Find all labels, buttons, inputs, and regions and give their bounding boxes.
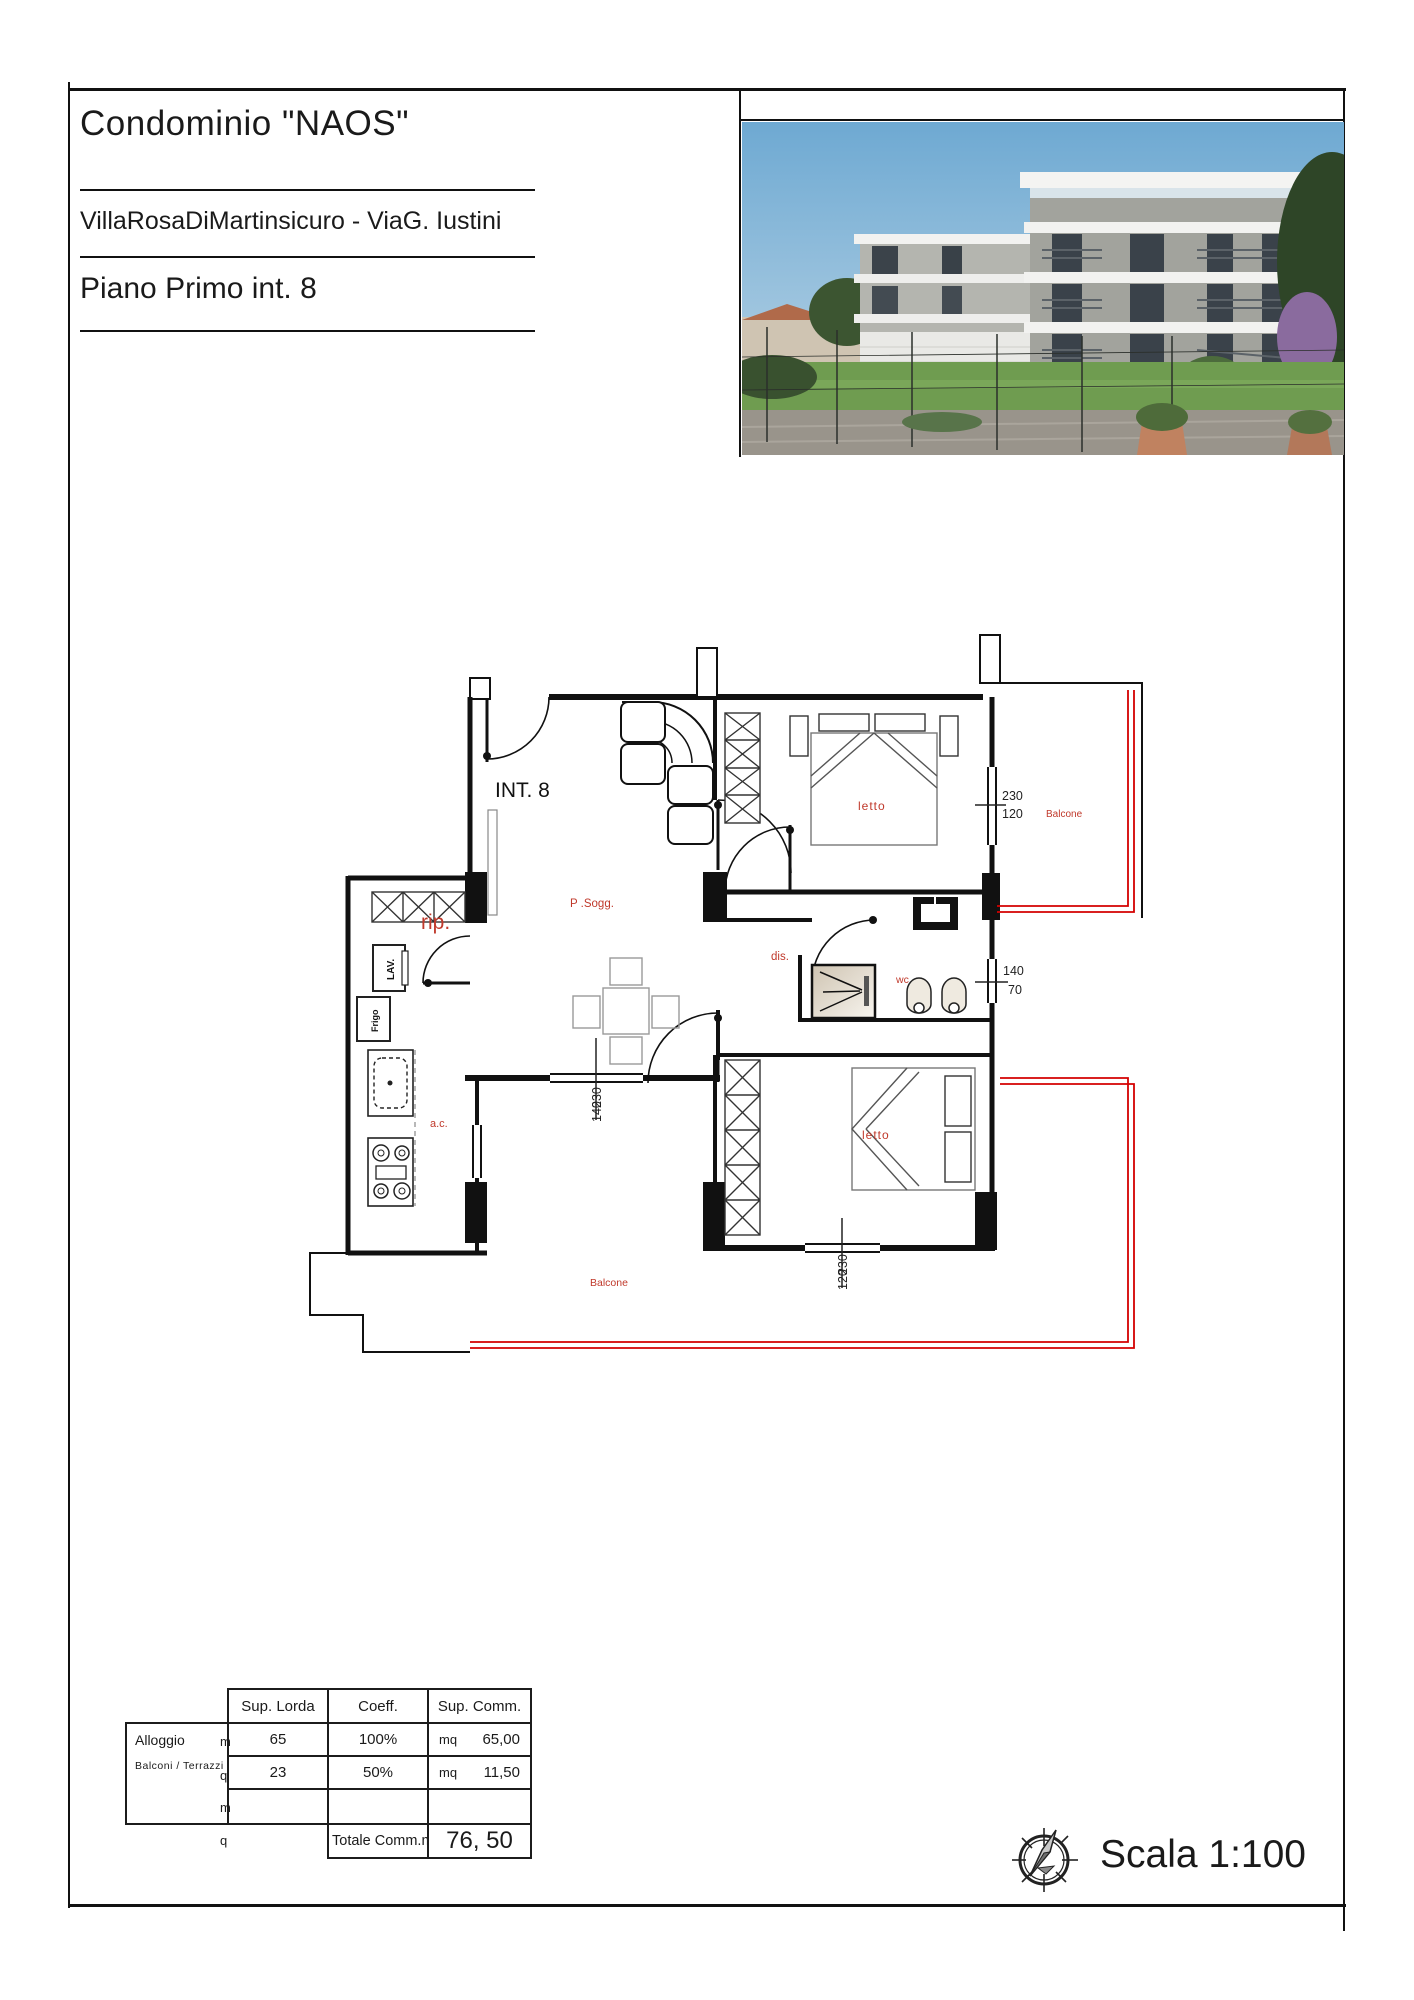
scale-label: Scala 1:100 [1100,1833,1306,1877]
unit-letter-q1: q [220,1768,227,1783]
cell-comm-balconi: mq 11,50 [427,1755,532,1790]
page-border-bottom [68,1904,1346,1907]
compass-rose-icon [1010,1822,1082,1894]
dim-win-mid-right-b: 70 [1008,983,1022,997]
comm-unit-alloggio: mq [439,1732,457,1747]
address-underline [80,256,535,258]
cell-lorda-alloggio: 65 [227,1722,329,1757]
dim-win-top-right-a: 230 [1002,789,1023,803]
room-label-hall: dis. [771,951,789,963]
page-floor: Piano Primo int. 8 [80,272,317,306]
table-header-coeff: Coeff. [327,1688,429,1724]
room-label-balcony-bottom: Balcone [590,1277,628,1289]
dining-table [573,958,679,1064]
page-address: VillaRosaDiMartinsicuro - ViaG. Iustini [80,207,501,236]
cell-coeff-empty [327,1788,429,1825]
table-label-col: Alloggio Balconi / Terrazzi [125,1722,229,1825]
washer-label: LAV. [386,959,397,980]
washbasin [913,897,958,930]
room-label-storage: rip. [421,911,450,934]
shower [812,965,875,1018]
page-border-top [70,88,1346,91]
title-underline [80,189,535,191]
photo-divider-horizontal [739,119,1345,121]
room-label-kitchen: a.c. [430,1118,448,1130]
wardrobe-bottom [725,1060,760,1235]
sofa [621,702,713,844]
room-label-balcony-right: Balcone [1046,809,1083,820]
building-photo [742,122,1344,455]
unit-letter-q2: q [220,1833,227,1848]
fridge-box: Frigo [357,997,390,1041]
plan-sheet: { "title_block": { "title": "Condominio … [0,0,1414,2000]
cell-coeff-balconi: 50% [327,1755,429,1790]
cell-coeff-alloggio: 100% [327,1722,429,1757]
unit-letter-m1: m [220,1734,231,1749]
wardrobe-top [725,713,760,823]
dim-win-top-right-b: 120 [1002,807,1023,821]
kitchen-storage-rip [372,892,465,922]
page-title: Condominio "NAOS" [80,104,409,144]
table-header-lorda: Sup. Lorda [227,1688,329,1724]
floor-plan: LAV. Frigo INT. 8 P .Sogg. rip. dis. wc … [290,620,1160,1380]
toilet [907,978,931,1013]
table-header-comm: Sup. Comm. [427,1688,532,1724]
dim-win-mid-right-a: 140 [1003,964,1024,978]
room-label-bedroom-top: letto [858,799,886,813]
cell-lorda-empty [227,1788,329,1825]
unit-letter-m2: m [220,1800,231,1815]
row-label-alloggio: Alloggio [135,1732,185,1748]
cell-total-label: Totale Comm.mq [327,1823,429,1859]
unit-label: INT. 8 [495,779,550,802]
bidet [942,978,966,1013]
washer-box: LAV. [373,945,408,991]
comm-unit-balconi: mq [439,1765,457,1780]
room-label-wc: wc [895,974,909,986]
kitchen-sink [368,1050,413,1116]
dim-win-bedroom2-b: 230 [836,1254,850,1275]
radiator [488,810,497,915]
comm-value-alloggio: 65,00 [482,1731,520,1748]
cell-total-value: 76, 50 [427,1823,532,1859]
photo-divider-vertical [739,90,741,457]
cell-comm-empty [427,1788,532,1825]
fridge-label: Frigo [370,1009,380,1032]
floor-underline [80,330,535,332]
cell-lorda-balconi: 23 [227,1755,329,1790]
room-label-bedroom-bottom: letto [862,1128,890,1142]
comm-value-balconi: 11,50 [484,1764,520,1781]
stove [368,1138,413,1206]
page-border-left [68,82,70,1908]
row-label-balconi: Balconi / Terrazzi [135,1760,224,1772]
cell-comm-alloggio: mq 65,00 [427,1722,532,1757]
dim-win-living-b: 230 [590,1087,604,1108]
bed-top [790,714,958,845]
room-label-living: P .Sogg. [570,898,614,910]
